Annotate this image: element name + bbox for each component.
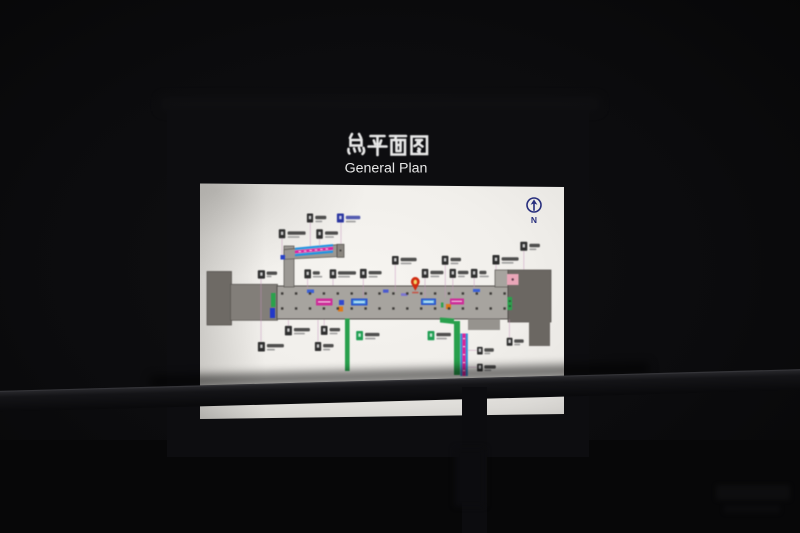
svg-text:General Plan: General Plan <box>345 161 428 177</box>
svg-text:N: N <box>531 215 537 225</box>
